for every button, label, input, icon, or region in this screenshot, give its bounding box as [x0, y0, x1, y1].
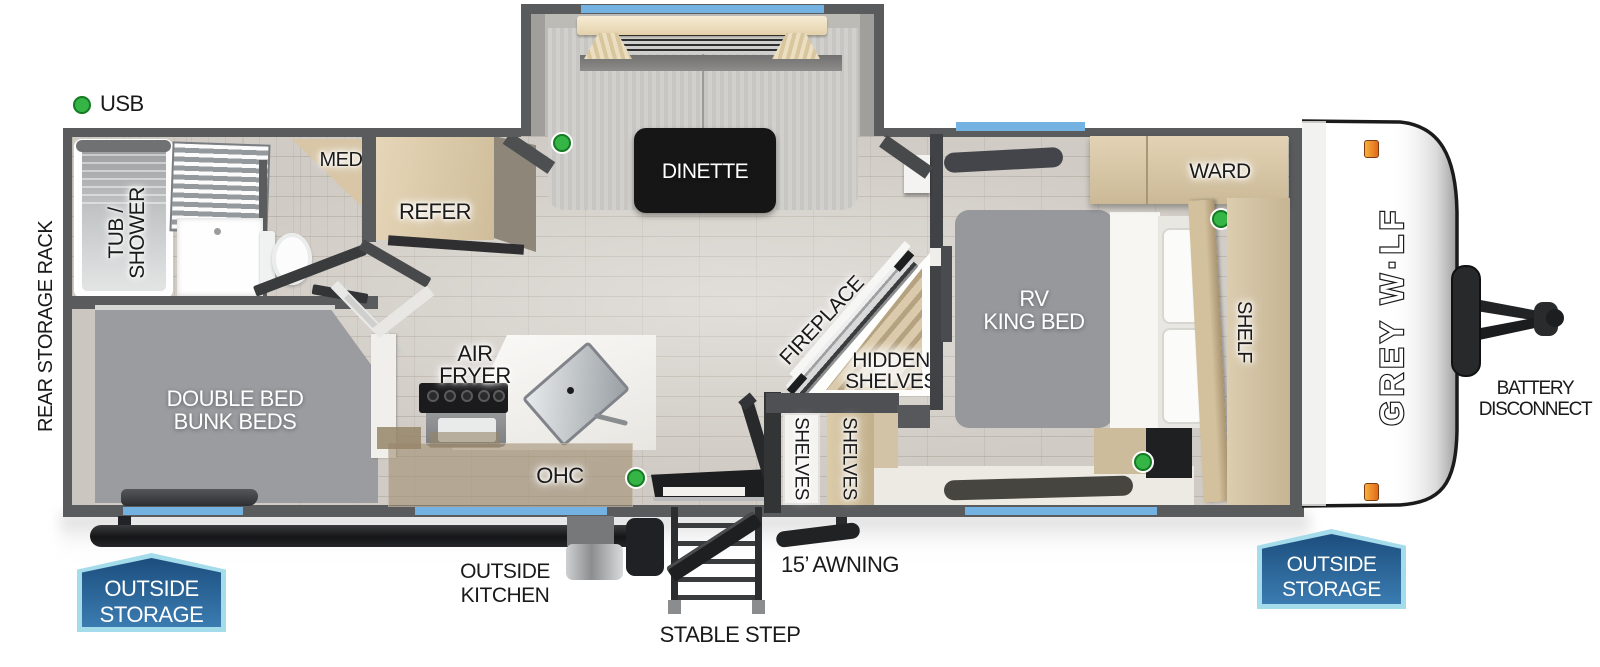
svg-text:GREY W·LF: GREY W·LF	[1374, 206, 1410, 425]
